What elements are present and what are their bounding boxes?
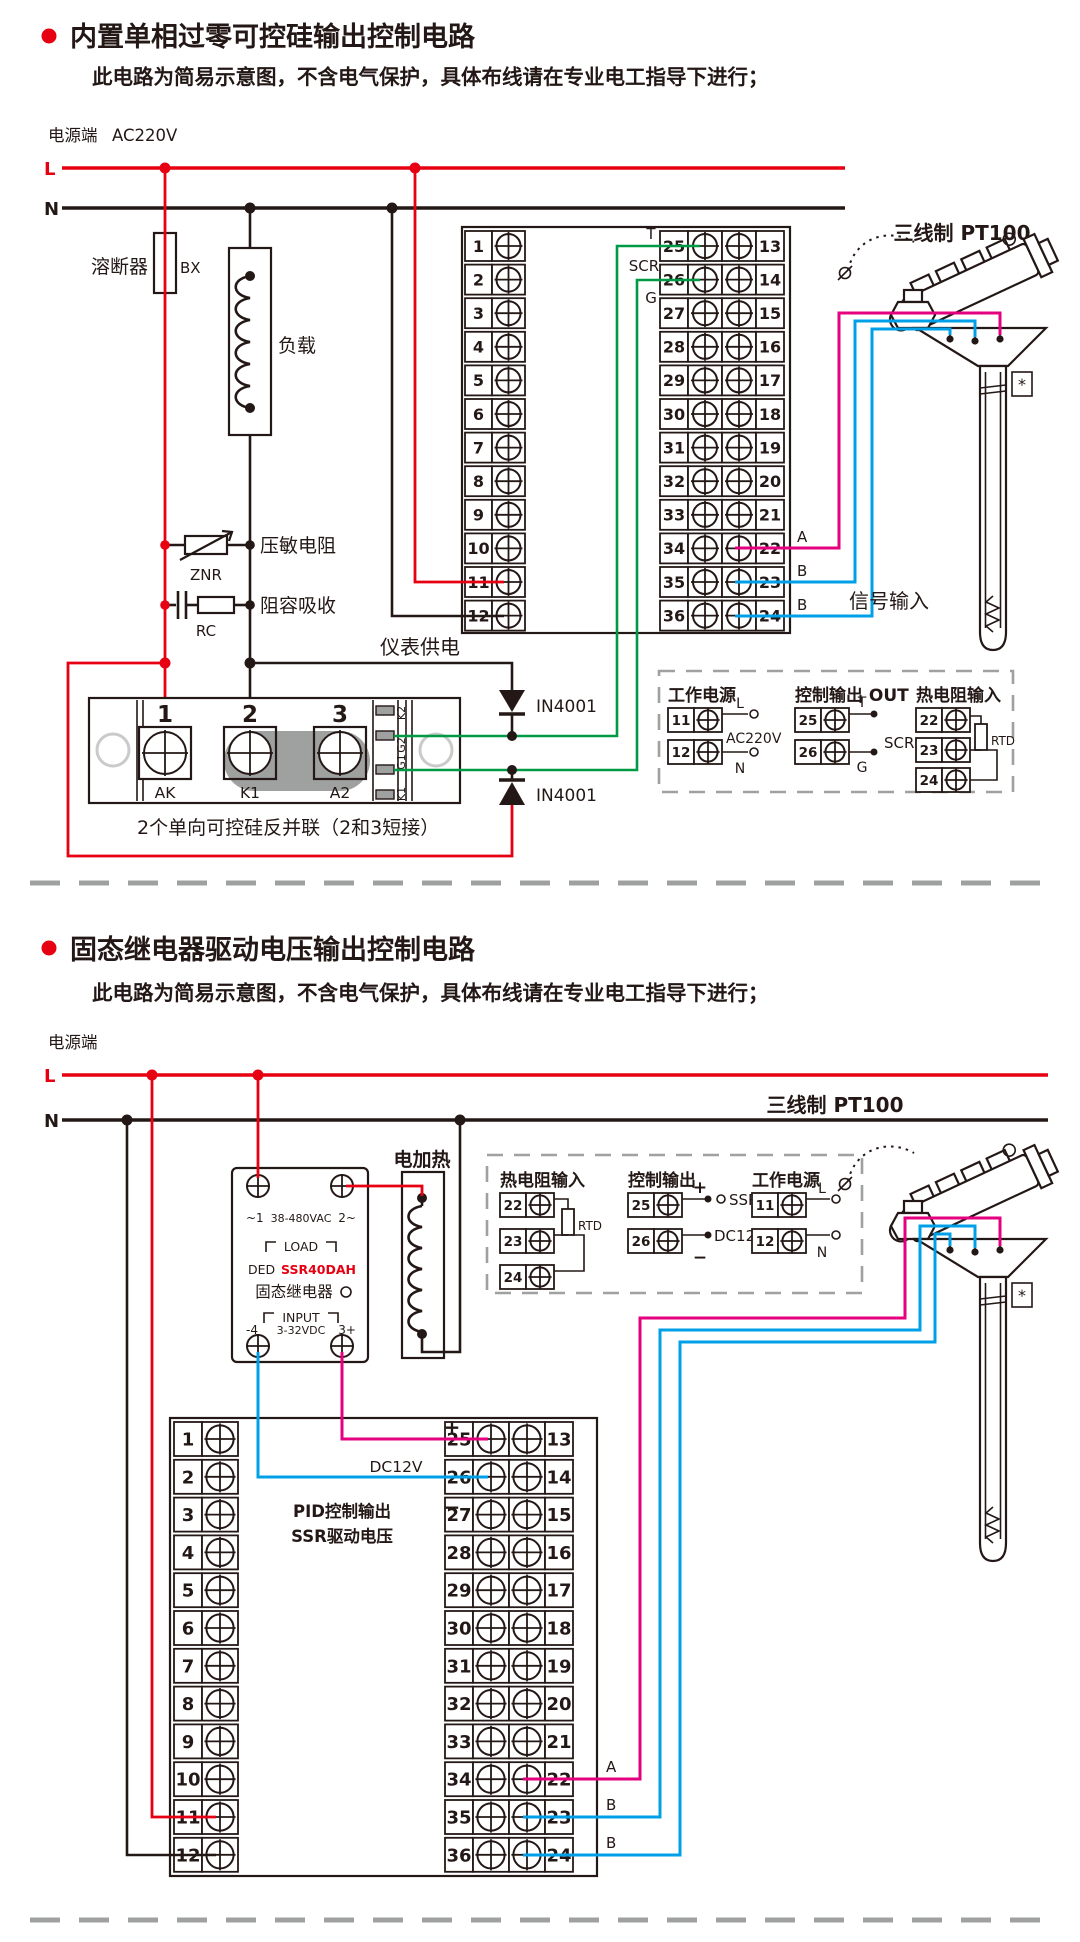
terminal-number: 2: [473, 270, 484, 289]
junction-dot: [160, 600, 170, 610]
diagram-canvas: * 内置单相过零可控硅输出控制电路 此电路为简易示意图，不含电气保护，具体布线请…: [0, 0, 1080, 1942]
junction-dot: [387, 203, 398, 214]
signal-input-label: 信号输入: [849, 589, 929, 613]
wire-g-label: G: [645, 289, 657, 307]
terminal-number: 7: [473, 438, 484, 457]
terminal-number: 28: [663, 338, 685, 357]
junction-dot: [245, 658, 256, 669]
info-output-scr: SCR: [884, 734, 914, 752]
terminal-number: 18: [546, 1618, 571, 1639]
meter-supply-label: 仪表供电: [380, 635, 460, 659]
pid-caption-2: SSR驱动电压: [291, 1526, 393, 1546]
info-rtd-label: RTD: [578, 1219, 602, 1233]
terminal-number: 10: [175, 1770, 200, 1791]
open-terminal-icon: [717, 1195, 725, 1203]
terminal-number: 7: [182, 1656, 195, 1677]
scr-terminal-1-number: 1: [157, 702, 173, 728]
open-terminal-icon: [750, 710, 758, 718]
info-output-t: T: [857, 695, 867, 711]
terminal-number: 16: [546, 1543, 571, 1564]
terminal-number: 15: [546, 1505, 571, 1526]
load-label: 负载: [278, 335, 316, 357]
terminal-number: 20: [546, 1694, 571, 1715]
ssr-brand: DED: [248, 1262, 275, 1277]
rc-label: 阻容吸收: [260, 595, 336, 617]
junction-dot: [417, 1329, 427, 1339]
terminal-number: 33: [663, 506, 685, 525]
terminal-number: 5: [182, 1581, 195, 1602]
junction-dot: [507, 731, 517, 741]
wire-a-label: A: [606, 1758, 617, 1776]
terminal-number: 6: [473, 405, 484, 424]
terminal-number: 8: [473, 472, 484, 491]
wire-k-to-diode: [250, 663, 512, 690]
info-box-1: 工作电源 1112 L AC220V N 控制输出 OUT 2526 T SCR…: [659, 671, 1015, 792]
section1-title: 内置单相过零可控硅输出控制电路: [70, 21, 476, 53]
terminal-number: 13: [546, 1429, 571, 1450]
pt100-sensor-2: [838, 1130, 1061, 1561]
bullet-icon: [42, 941, 57, 956]
junction-dot: [253, 1070, 264, 1081]
junction-dot: [245, 600, 255, 610]
rtd-resistor: [975, 724, 987, 750]
junction-dot: [410, 163, 421, 174]
junction-dot: [122, 1115, 133, 1126]
info-output-terminals: 2526: [628, 1193, 682, 1253]
terminal-number: 30: [446, 1618, 471, 1639]
terminal-number: 21: [546, 1732, 571, 1753]
section1-subtitle: 此电路为简易示意图，不含电气保护，具体布线请在专业电工指导下进行；: [92, 65, 769, 89]
terminal-number: 18: [759, 405, 781, 424]
ssr-model: SSR40DAH: [281, 1262, 356, 1277]
info-power-voltage: AC220V: [726, 731, 782, 747]
ssr-b2: 3+: [338, 1323, 356, 1337]
wire-t-label: T: [645, 225, 656, 243]
gate-pad: [376, 706, 394, 715]
pad-label-g2: G2: [395, 737, 408, 753]
ssr-ac-rating: 38-480VAC: [271, 1212, 332, 1225]
terminal-number: 35: [446, 1807, 471, 1828]
scr-module: 1 2 3 AK K1 A2 K2 G2 G1 K1: [89, 698, 460, 803]
ssr-t2: 2~: [338, 1211, 356, 1225]
terminal-number: 33: [446, 1732, 471, 1753]
bullet-icon: [42, 29, 57, 44]
section2-subtitle: 此电路为简易示意图，不含电气保护，具体布线请在专业电工指导下进行；: [92, 981, 769, 1005]
open-terminal-icon: [832, 1231, 840, 1239]
terminal-number: 30: [663, 405, 685, 424]
line-l-label: L: [44, 159, 55, 180]
terminal-number: 8: [182, 1694, 195, 1715]
terminal-number: 11: [756, 1198, 775, 1214]
terminal-number: 12: [756, 1234, 775, 1250]
info-rtd-title: 热电阻输入: [916, 685, 1001, 706]
diode-1-label: IN4001: [536, 697, 597, 717]
terminal-number: 1: [473, 237, 484, 256]
terminal-number: 11: [672, 713, 691, 729]
terminal-number: 32: [446, 1694, 471, 1715]
terminal-number: 2: [182, 1467, 195, 1488]
junction-dot: [507, 765, 517, 775]
scr-caption: 2个单向可控硅反并联（2和3短接）: [137, 817, 439, 839]
wire-b2-label: B: [797, 596, 807, 614]
terminal-number: 16: [759, 338, 781, 357]
terminal-number: 5: [473, 371, 484, 390]
terminal-number: 22: [920, 713, 939, 729]
terminal-number: 22: [504, 1198, 523, 1214]
circuit-2-ssr: 固态继电器驱动电压输出控制电路 此电路为简易示意图，不含电气保护，具体布线请在专…: [42, 934, 1062, 1876]
terminal-number: 36: [446, 1845, 471, 1866]
info-power-terminals: 1112: [668, 708, 722, 764]
pad-label-k1: K1: [395, 787, 408, 801]
power-voltage-label: AC220V: [112, 126, 178, 145]
ssr-t1: ~1: [246, 1211, 264, 1225]
rtd-resistor: [562, 1209, 574, 1235]
ssr-b1: -4: [246, 1323, 258, 1337]
wire-b1-label: B: [797, 562, 807, 580]
dc-plus-label: +: [444, 1415, 461, 1439]
info-power-title: 工作电源: [668, 685, 736, 706]
gate-pad: [376, 765, 394, 774]
dc-minus-label: −: [444, 1495, 461, 1519]
power-terminal-label: 电源端: [48, 126, 98, 145]
pt100-2-label: 三线制 PT100: [766, 1093, 903, 1117]
varistor-label: 压敏电阻: [260, 535, 336, 557]
terminal-number: 15: [759, 304, 781, 323]
terminal-number: 32: [663, 472, 685, 491]
terminal-number: 4: [473, 338, 484, 357]
terminal-number: 24: [920, 773, 939, 789]
wire-b1-label: B: [606, 1796, 616, 1814]
scr-label-a2: A2: [330, 784, 350, 802]
info-power-title: 工作电源: [752, 1170, 820, 1191]
line-l-label: L: [44, 1066, 55, 1087]
junction-dot: [147, 1070, 158, 1081]
pad-label-k2: K2: [395, 706, 408, 720]
scr-terminal-2-number: 2: [242, 702, 258, 728]
info-rtd-label: RTD: [991, 734, 1015, 748]
terminal-number: 25: [632, 1198, 651, 1214]
open-terminal-icon: [832, 1195, 840, 1203]
info-rtd-terminals: 222324: [500, 1193, 554, 1289]
terminal-number: 4: [182, 1543, 195, 1564]
info-power-n: N: [817, 1245, 827, 1261]
heater-label: 电加热: [393, 1148, 450, 1171]
wire-b2-label: B: [606, 1834, 616, 1852]
info-output-g: G: [857, 760, 868, 776]
section2-title: 固态继电器驱动电压输出控制电路: [70, 934, 476, 966]
rc-resistor: [198, 597, 234, 613]
terminal-number: 13: [759, 237, 781, 256]
info-power-terminals: 1112: [752, 1193, 806, 1253]
ssr-input-label: INPUT: [282, 1310, 320, 1325]
pid-caption-1: PID控制输出: [293, 1501, 391, 1521]
junction-dot: [160, 163, 171, 174]
terminal-number: 3: [473, 304, 484, 323]
terminal-number: 12: [672, 745, 691, 761]
ssr-module: ~1 38-480VAC 2~ LOAD DED SSR40DAH 固态继电器 …: [232, 1168, 368, 1362]
terminal-number: 23: [504, 1234, 523, 1250]
terminal-number: 23: [920, 743, 939, 759]
terminal-number: 1: [182, 1429, 195, 1450]
scr-terminal-3-number: 3: [332, 702, 348, 728]
terminal-number: 35: [663, 573, 685, 592]
info-output-title: 控制输出: [628, 1170, 696, 1191]
terminal-number: 21: [759, 506, 781, 525]
terminal-number: 17: [546, 1581, 571, 1602]
rc-code: RC: [196, 622, 216, 640]
fuse-code: BX: [180, 259, 201, 277]
power-terminal-label: 电源端: [48, 1033, 98, 1052]
line-n-label: N: [44, 199, 59, 220]
info-plus: +: [693, 1178, 707, 1198]
scr-label-ak: AK: [155, 784, 177, 802]
ssr-dc-rating: 3-32VDC: [277, 1324, 326, 1337]
info-power-l: L: [736, 696, 744, 712]
terminal-number: 19: [759, 438, 781, 457]
fuse-label: 溶断器: [91, 256, 148, 278]
terminal-number: 24: [504, 1270, 523, 1286]
terminal-number: 26: [799, 745, 818, 761]
ssr-load-label: LOAD: [284, 1239, 318, 1254]
gate-pad: [376, 731, 394, 740]
junction-dot: [160, 540, 170, 550]
terminal-number: 31: [446, 1656, 471, 1677]
circuit-1-thyristor: 内置单相过零可控硅输出控制电路 此电路为简易示意图，不含电气保护，具体布线请在专…: [42, 21, 1062, 856]
info-rtd-terminals: 222324: [916, 708, 970, 792]
pad-label-g1: G1: [395, 754, 408, 770]
terminal-number: 9: [182, 1732, 195, 1753]
terminal-number: 3: [182, 1505, 195, 1526]
diode-2-label: IN4001: [536, 786, 597, 806]
diode-2: [499, 782, 525, 805]
junction-dot: [245, 403, 255, 413]
terminal-number: 34: [446, 1770, 471, 1791]
terminal-number: 27: [663, 304, 685, 323]
gate-pad: [376, 790, 394, 799]
info-box-2: 热电阻输入 222324 RTD 控制输出 2526 + SSR DC12V −…: [487, 1155, 862, 1293]
info-power-l: L: [818, 1181, 826, 1197]
junction-dot: [245, 203, 256, 214]
terminal-number: 20: [759, 472, 781, 491]
junction-dot: [455, 1115, 466, 1126]
terminal-number: 28: [446, 1543, 471, 1564]
diode-1: [499, 690, 525, 712]
ssr-name: 固态继电器: [255, 1283, 333, 1301]
info-power-n: N: [735, 761, 745, 777]
terminal-number: 34: [663, 539, 685, 558]
wire-a-label: A: [797, 528, 808, 546]
dc12v-label: DC12V: [369, 1458, 422, 1476]
wire-scr-label: SCR: [629, 257, 659, 275]
terminal-number: 9: [473, 506, 484, 525]
terminal-number: 29: [663, 371, 685, 390]
terminal-number: 36: [663, 606, 685, 625]
open-terminal-icon: [750, 748, 758, 756]
junction-dot: [245, 271, 255, 281]
info-output-terminals: 2526: [795, 708, 849, 764]
terminal-number: 26: [632, 1234, 651, 1250]
terminal-number: 29: [446, 1581, 471, 1602]
info-minus: −: [693, 1248, 707, 1268]
info-rtd-title: 热电阻输入: [500, 1170, 585, 1191]
varistor-code: ZNR: [190, 566, 222, 584]
terminal-number: 31: [663, 438, 685, 457]
terminal-number: 19: [546, 1656, 571, 1677]
info-output-title: 控制输出 OUT: [795, 685, 909, 706]
terminal-number: 6: [182, 1618, 195, 1639]
scr-label-k1: K1: [240, 784, 260, 802]
wiring-diagram-page: * 内置单相过零可控硅输出控制电路 此电路为简易示意图，不含电气保护，具体布线请…: [0, 0, 1080, 1942]
junction-dot: [245, 540, 255, 550]
terminal-number: 14: [759, 270, 781, 289]
terminal-number: 17: [759, 371, 781, 390]
line-n-label: N: [44, 1111, 59, 1132]
terminal-number: 10: [467, 539, 489, 558]
terminal-number: 14: [546, 1467, 571, 1488]
junction-dot: [160, 658, 171, 669]
terminal-number: 25: [799, 713, 818, 729]
